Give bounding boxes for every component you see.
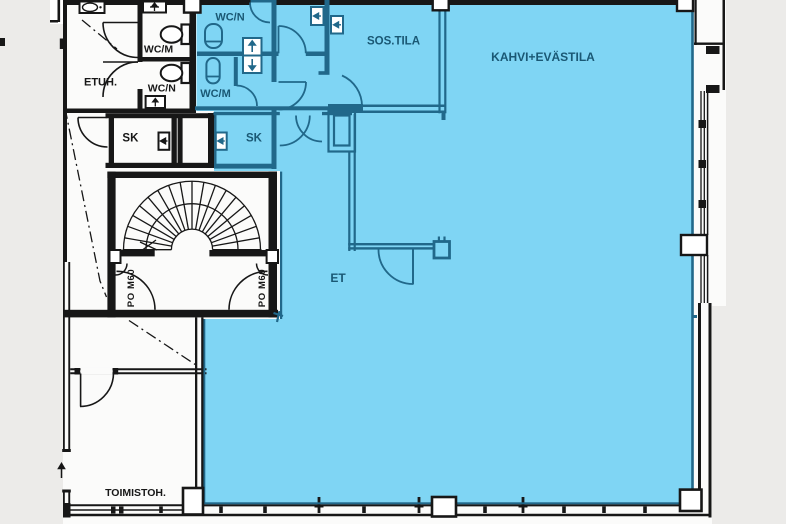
svg-text:SOS.TILA: SOS.TILA — [367, 36, 420, 48]
svg-text:WC/M: WC/M — [200, 88, 231, 100]
svg-text:SK: SK — [122, 133, 139, 145]
svg-text:WC/N: WC/N — [215, 12, 244, 24]
svg-text:TOIMISTOH.: TOIMISTOH. — [105, 487, 166, 499]
svg-text:WC/M: WC/M — [144, 44, 173, 56]
svg-text:PO M60: PO M60 — [257, 269, 268, 307]
svg-text:SK: SK — [246, 133, 263, 145]
svg-text:ET: ET — [330, 271, 346, 285]
svg-text:PO M60: PO M60 — [126, 269, 137, 307]
svg-text:KAHVI+EVÄSTILA: KAHVI+EVÄSTILA — [491, 49, 595, 64]
svg-text:ETUH.: ETUH. — [84, 77, 117, 89]
svg-text:WC/N: WC/N — [148, 83, 176, 95]
